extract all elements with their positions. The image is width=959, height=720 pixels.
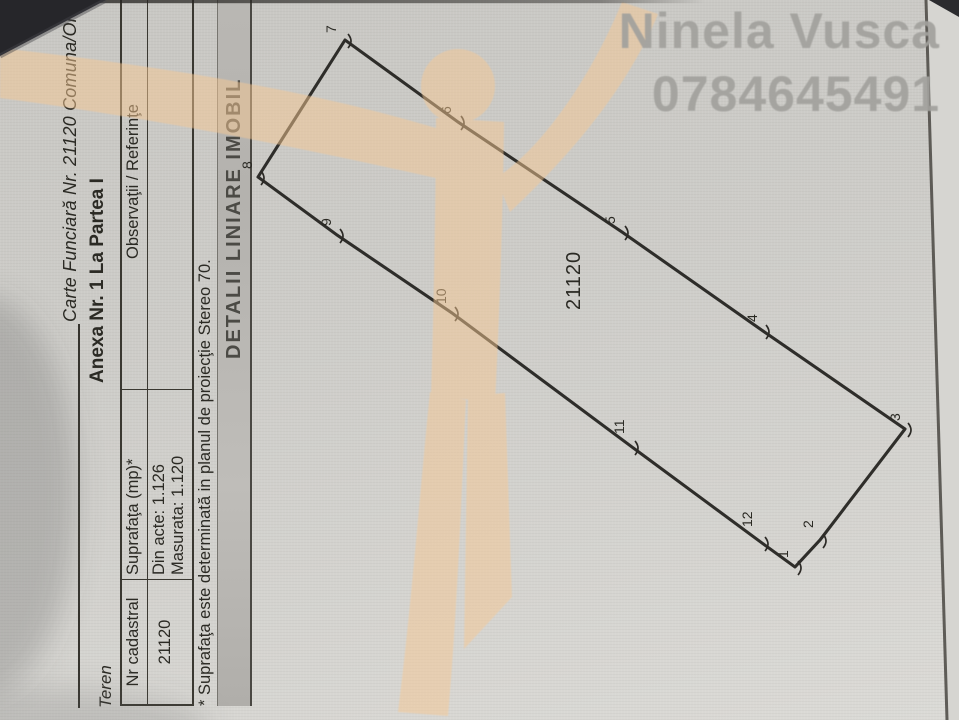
watermark-name: Ninela Vusca [520,0,940,63]
paper-bottom-shadow [0,688,210,720]
contact-watermark: Ninela Vusca 0784645491 [520,0,940,126]
watermark-phone: 0784645491 [520,63,940,126]
photo-of-document: Carte Funciară Nr. 21120 Comuna/Oraş/Mun… [0,0,959,720]
paper-fold-shadow [0,295,77,695]
